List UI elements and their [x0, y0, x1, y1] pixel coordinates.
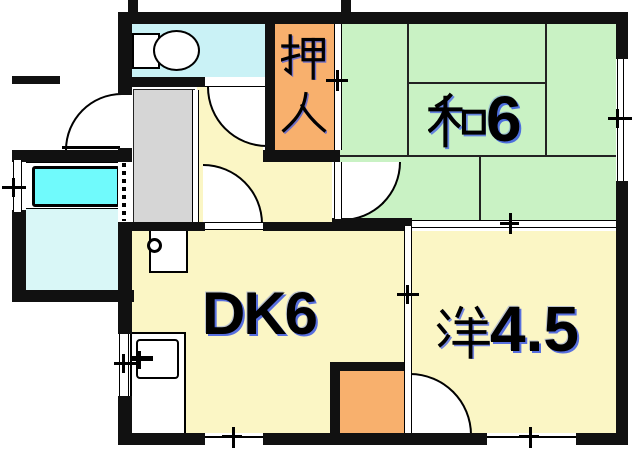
- kanji-oshi-glyph: [281, 34, 327, 80]
- wall-oshiire-bottom: [263, 150, 340, 162]
- wall-east-upper: [616, 12, 628, 59]
- wall-bottom-2: [263, 433, 487, 445]
- closet-floor: [340, 371, 404, 433]
- wall-bath-west: [12, 210, 26, 302]
- wall-dk-west-upper: [118, 222, 132, 334]
- kanji-wa-glyph: [428, 92, 486, 150]
- partition-hall: [192, 90, 199, 222]
- opening-tick: [406, 285, 409, 304]
- wall-closet-top: [330, 362, 412, 371]
- oshiire-label: [281, 34, 327, 136]
- tatami-line: [407, 24, 409, 156]
- toilet-bowl-icon: [153, 30, 200, 71]
- western-room-label: 4.5: [436, 298, 579, 360]
- accordion-door-dashes: [122, 163, 126, 221]
- tatami-line: [545, 24, 547, 156]
- opening-tick: [12, 178, 15, 197]
- entrance-door-arc: [65, 93, 122, 150]
- entry-hall-floor: [133, 89, 195, 224]
- wall-bottom-1: [118, 433, 205, 445]
- washitsu-label: 6: [428, 88, 522, 150]
- tatami-line: [479, 157, 481, 222]
- wall-closet-west: [330, 362, 340, 433]
- toilet-door-frame: [205, 77, 265, 87]
- kanji-iri-glyph: [281, 90, 327, 136]
- wall-washitsu-south: [332, 218, 412, 231]
- dk-label-text: DK6: [202, 284, 316, 344]
- entrance-door-leaf: [62, 146, 120, 149]
- tatami-line: [340, 155, 616, 157]
- washitsu-door-leaf: [334, 162, 342, 219]
- faucet-icon: [130, 356, 153, 361]
- opening-tick: [616, 109, 619, 128]
- washitsu-size: 6: [486, 88, 522, 150]
- bathtub-icon: [32, 166, 120, 207]
- wall-oshiire-west: [265, 12, 275, 162]
- wall-bath-bottom: [12, 290, 134, 302]
- western-room-size: 4.5: [490, 298, 579, 360]
- wall-hall-bottom-west: [118, 222, 205, 231]
- wall-east-lower: [616, 181, 628, 445]
- opening-tick: [114, 362, 138, 365]
- water-heater-knob-icon: [147, 238, 162, 253]
- kanji-you-glyph: [436, 305, 490, 359]
- opening-tick: [529, 427, 532, 448]
- opening-tick: [232, 427, 235, 448]
- wall-top: [118, 12, 628, 24]
- hall-dk-door-frame: [205, 222, 263, 230]
- opening-tick: [336, 70, 339, 91]
- dining-kitchen-label: DK6: [202, 284, 316, 344]
- faucet-icon-stem: [136, 351, 141, 369]
- floorplan: 6 DK6 4.5: [0, 0, 640, 458]
- opening-tick: [509, 213, 512, 234]
- bathroom-floor: [26, 208, 120, 292]
- wall-stub: [12, 76, 60, 84]
- hallway-floor-east: [263, 162, 332, 222]
- wall-bath-top: [12, 150, 132, 162]
- wall-toilet-bottom: [118, 77, 205, 87]
- opening-tick: [608, 117, 632, 120]
- tatami-line: [407, 82, 547, 84]
- partition-dk-western: [404, 226, 412, 433]
- wall-hall-bottom-east: [263, 222, 332, 231]
- opening-tick: [122, 354, 125, 373]
